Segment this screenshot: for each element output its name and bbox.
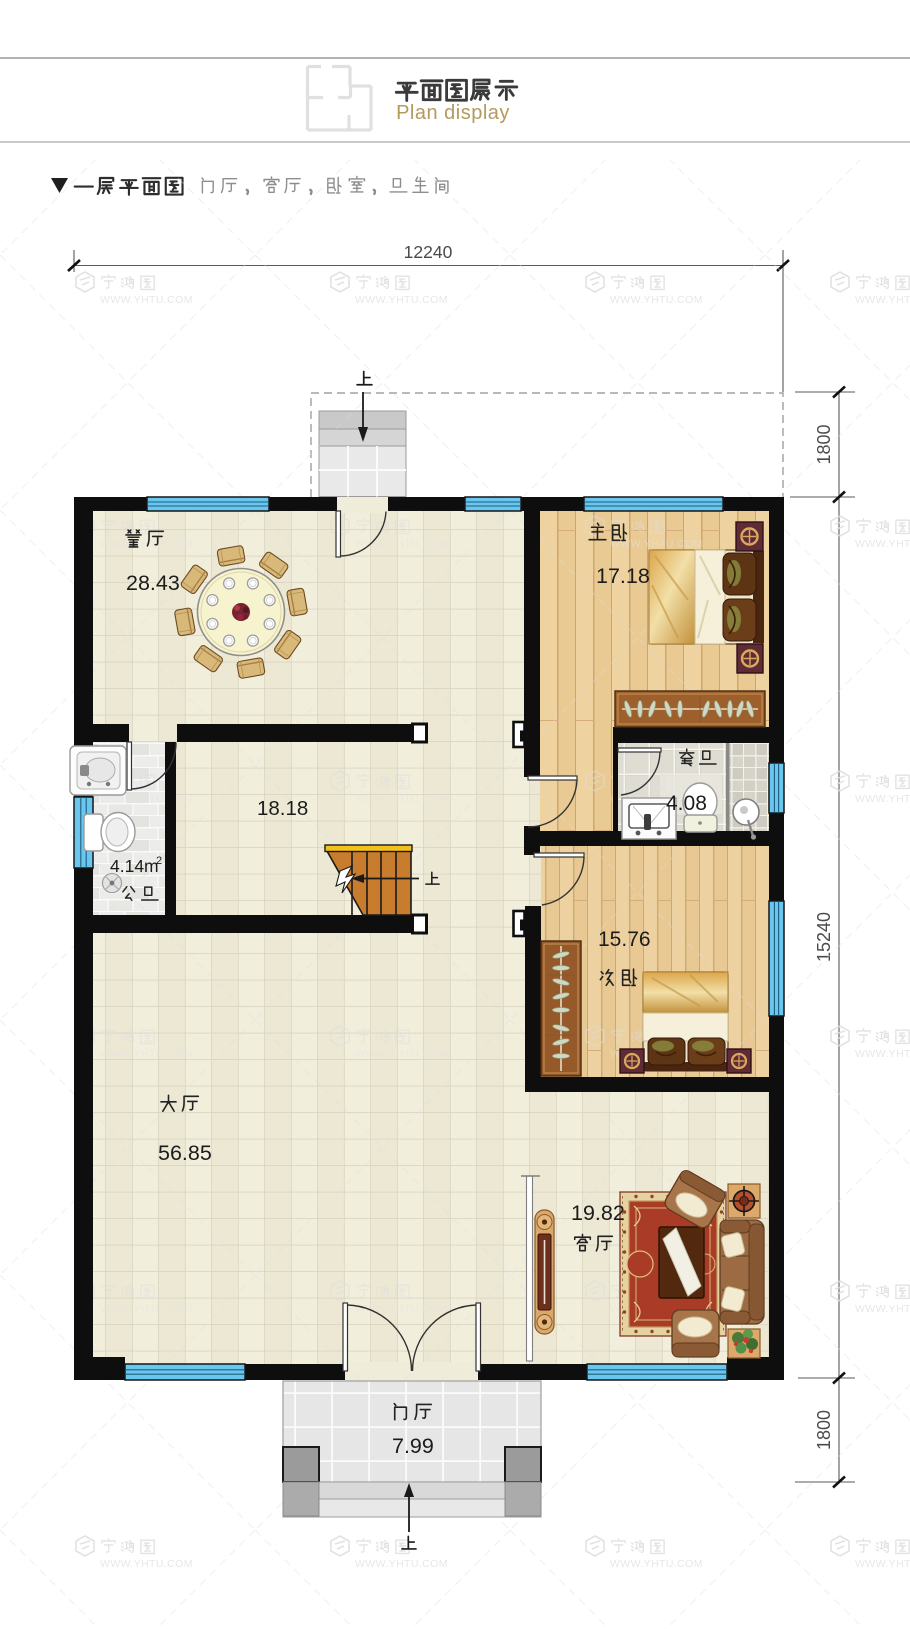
- svg-text:WWW.YHTU.COM: WWW.YHTU.COM: [100, 1048, 193, 1060]
- svg-text:WWW.YHTU.COM: WWW.YHTU.COM: [355, 1048, 448, 1060]
- svg-text:4.08: 4.08: [666, 792, 707, 815]
- svg-text:WWW.YHTU.COM: WWW.YHTU.COM: [855, 294, 910, 306]
- svg-text:WWW.YHTU.COM: WWW.YHTU.COM: [355, 793, 448, 805]
- svg-text:WWW.YHTU.COM: WWW.YHTU.COM: [855, 793, 910, 805]
- svg-text:WWW.YHTU.COM: WWW.YHTU.COM: [855, 1558, 910, 1570]
- svg-text:15.76: 15.76: [598, 928, 651, 951]
- svg-text:WWW.YHTU.COM: WWW.YHTU.COM: [355, 1558, 448, 1570]
- svg-text:Plan display: Plan display: [396, 102, 510, 124]
- svg-text:56.85: 56.85: [158, 1141, 212, 1165]
- svg-text:28.43: 28.43: [126, 571, 180, 595]
- svg-text:WWW.YHTU.COM: WWW.YHTU.COM: [855, 1048, 910, 1060]
- svg-text:19.82: 19.82: [571, 1201, 625, 1225]
- svg-text:WWW.YHTU.COM: WWW.YHTU.COM: [355, 294, 448, 306]
- svg-text:7.99: 7.99: [392, 1434, 434, 1458]
- svg-text:WWW.YHTU.COM: WWW.YHTU.COM: [100, 294, 193, 306]
- svg-text:WWW.YHTU.COM: WWW.YHTU.COM: [855, 1303, 910, 1315]
- svg-text:WWW.YHTU.COM: WWW.YHTU.COM: [100, 538, 193, 550]
- svg-text:WWW.YHTU.COM: WWW.YHTU.COM: [100, 1558, 193, 1570]
- svg-text:WWW.YHTU.COM: WWW.YHTU.COM: [610, 1558, 703, 1570]
- svg-text:17.18: 17.18: [596, 564, 650, 588]
- svg-text:18.18: 18.18: [257, 797, 308, 820]
- svg-text:4.14m: 4.14m: [110, 856, 159, 876]
- svg-text:2: 2: [156, 855, 162, 867]
- svg-text:WWW.YHTU.COM: WWW.YHTU.COM: [100, 1303, 193, 1315]
- svg-text:WWW.YHTU.COM: WWW.YHTU.COM: [355, 538, 448, 550]
- svg-text:WWW.YHTU.COM: WWW.YHTU.COM: [610, 294, 703, 306]
- svg-text:WWW.YHTU.COM: WWW.YHTU.COM: [855, 538, 910, 550]
